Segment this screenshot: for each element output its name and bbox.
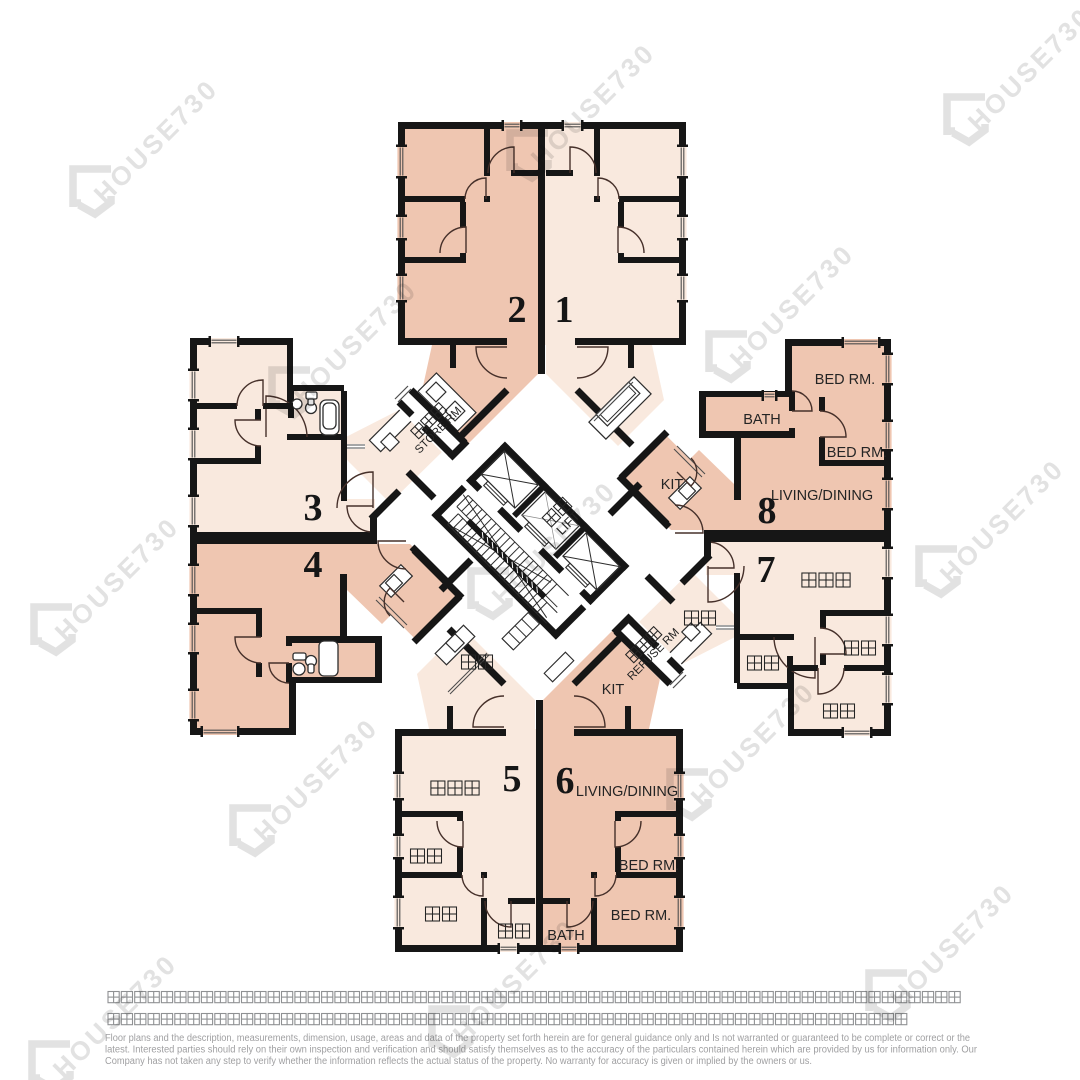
svg-text:BATH: BATH	[743, 412, 781, 428]
svg-text:Floor plans and the descriptio: Floor plans and the description, measure…	[105, 1033, 970, 1044]
svg-text:BED RM.: BED RM.	[611, 908, 671, 924]
svg-text:7: 7	[757, 549, 776, 591]
svg-text:Company has not taken any step: Company has not taken any step to verify…	[105, 1056, 812, 1067]
svg-text:latest. Interested parties sho: latest. Interested parties should rely o…	[105, 1045, 978, 1056]
svg-text:4: 4	[304, 544, 323, 586]
svg-text:BED RM.: BED RM.	[619, 858, 679, 874]
svg-text:6: 6	[556, 760, 575, 802]
svg-text:BED RM.: BED RM.	[815, 372, 875, 388]
svg-text:KIT: KIT	[602, 682, 625, 698]
svg-text:5: 5	[503, 758, 522, 800]
svg-text:KIT: KIT	[661, 477, 684, 493]
svg-text:BED RM.: BED RM.	[827, 445, 887, 461]
svg-text:LIVING/DINING: LIVING/DINING	[576, 784, 678, 800]
svg-text:1: 1	[555, 289, 574, 331]
svg-text:LIVING/DINING: LIVING/DINING	[771, 488, 873, 504]
svg-text:3: 3	[304, 487, 323, 529]
svg-text:2: 2	[508, 289, 527, 331]
